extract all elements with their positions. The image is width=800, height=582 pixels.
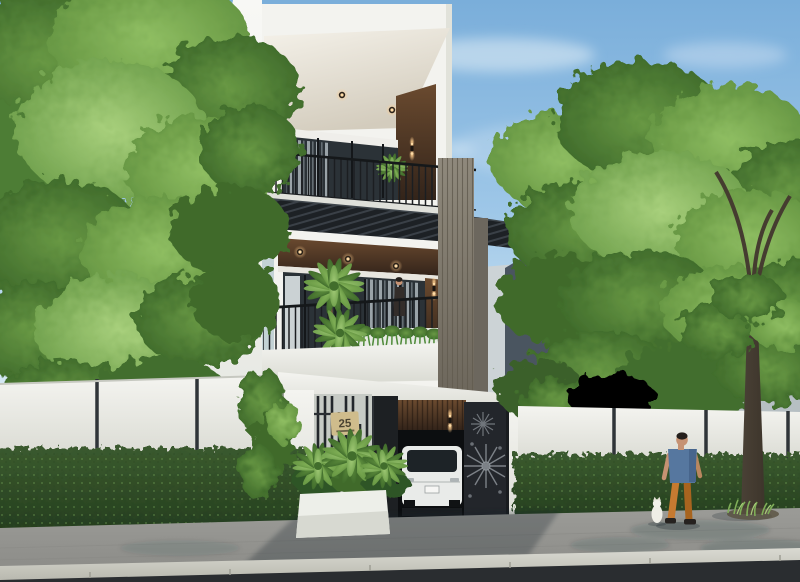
car-wheel	[404, 500, 415, 507]
middle-floor	[262, 238, 466, 384]
man-leg-back	[687, 481, 689, 519]
car-rear-window	[407, 450, 457, 472]
ceiling-downlight	[294, 246, 307, 259]
house-number: 25	[338, 418, 352, 431]
ceiling-downlight	[342, 253, 355, 266]
decorative-gate-panel[interactable]	[464, 402, 508, 526]
house-number-plate: 25	[330, 411, 359, 435]
man-hair	[676, 432, 687, 439]
woman-hair	[396, 277, 403, 282]
architectural-render: 25	[0, 0, 800, 582]
garage	[398, 400, 466, 526]
ceiling-downlight	[336, 89, 349, 102]
man-shoe	[684, 519, 696, 525]
screen-planks	[438, 158, 474, 408]
man-shoe	[665, 518, 676, 524]
car-taillight	[450, 478, 459, 482]
fence-left	[0, 376, 262, 460]
fence-panels	[0, 376, 262, 460]
cat-body	[652, 505, 663, 523]
ceiling-downlight	[390, 260, 403, 273]
man-shirt-shade	[689, 449, 696, 482]
car-wheel	[449, 500, 460, 507]
man-leg-front	[671, 481, 676, 519]
car	[402, 446, 462, 516]
license-plate	[425, 486, 439, 493]
screen-side-shade	[474, 218, 488, 408]
